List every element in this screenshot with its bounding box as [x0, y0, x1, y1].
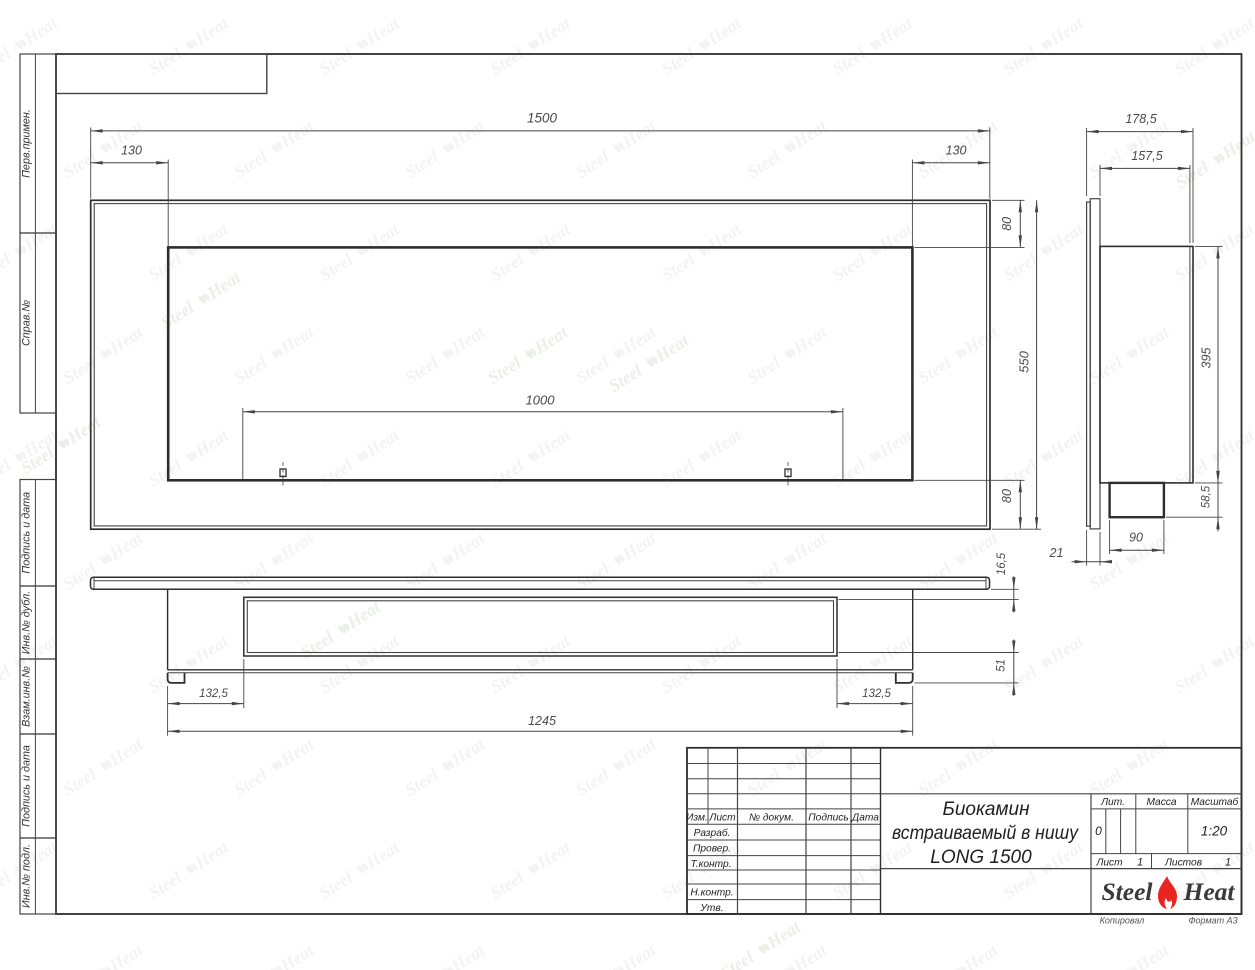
svg-text:178,5: 178,5: [1125, 112, 1156, 126]
svg-text:Подпись и дата: Подпись и дата: [21, 492, 33, 574]
svg-text:Дата: Дата: [851, 812, 879, 823]
svg-text:Справ.№: Справ.№: [21, 300, 33, 346]
svg-text:132,5: 132,5: [199, 688, 228, 700]
svg-text:80: 80: [1000, 217, 1014, 231]
svg-text:Перв.примен.: Перв.примен.: [21, 109, 33, 178]
svg-text:Копировал: Копировал: [1100, 916, 1145, 926]
svg-text:Лист: Лист: [1095, 857, 1123, 868]
svg-text:58,5: 58,5: [1201, 485, 1213, 508]
svg-text:132,5: 132,5: [862, 688, 891, 700]
svg-text:130: 130: [946, 144, 967, 158]
svg-text:Инв.№ дубл.: Инв.№ дубл.: [21, 591, 33, 654]
svg-text:Т.контр.: Т.контр.: [690, 859, 731, 870]
svg-text:Подпись: Подпись: [808, 812, 848, 823]
svg-text:LONG 1500: LONG 1500: [930, 847, 1032, 868]
svg-text:Провер.: Провер.: [693, 844, 731, 855]
svg-text:Steel: Steel: [1102, 877, 1154, 906]
svg-text:Листов: Листов: [1164, 857, 1203, 868]
svg-text:Масштаб: Масштаб: [1191, 796, 1240, 808]
svg-text:Heat: Heat: [1183, 877, 1236, 906]
svg-text:Изм.: Изм.: [686, 812, 708, 823]
svg-text:90: 90: [1129, 531, 1143, 545]
svg-text:Биокамин: Биокамин: [942, 799, 1030, 820]
svg-text:16,5: 16,5: [996, 552, 1008, 575]
svg-text:1500: 1500: [527, 111, 558, 126]
svg-text:51: 51: [996, 659, 1008, 672]
svg-text:1245: 1245: [528, 714, 556, 728]
svg-text:Лист: Лист: [708, 812, 736, 823]
svg-text:Формат А3: Формат А3: [1188, 916, 1237, 926]
svg-text:Разраб.: Разраб.: [694, 827, 731, 839]
svg-text:130: 130: [121, 144, 142, 158]
svg-text:1: 1: [1137, 856, 1143, 868]
svg-text:Масса: Масса: [1146, 797, 1176, 808]
svg-text:встраиваемый в нишу: встраиваемый в нишу: [892, 823, 1079, 844]
svg-text:0: 0: [1095, 824, 1102, 838]
svg-text:Подпись и дата: Подпись и дата: [21, 745, 33, 827]
svg-text:№ докум.: № докум.: [749, 812, 794, 823]
svg-text:Н.контр.: Н.контр.: [690, 888, 733, 899]
svg-text:1: 1: [1225, 856, 1231, 868]
svg-text:80: 80: [1000, 489, 1014, 503]
svg-text:21: 21: [1049, 546, 1064, 560]
svg-text:1000: 1000: [526, 393, 556, 408]
svg-text:Инв.№ подл.: Инв.№ подл.: [21, 844, 33, 908]
svg-text:Утв.: Утв.: [699, 903, 723, 914]
svg-text:157,5: 157,5: [1131, 149, 1162, 163]
svg-text:Взам.инв.№: Взам.инв.№: [21, 666, 33, 727]
svg-text:395: 395: [1200, 348, 1214, 369]
svg-text:Лит.: Лит.: [1100, 797, 1125, 808]
svg-text:1:20: 1:20: [1201, 824, 1228, 839]
svg-text:550: 550: [1017, 350, 1032, 372]
